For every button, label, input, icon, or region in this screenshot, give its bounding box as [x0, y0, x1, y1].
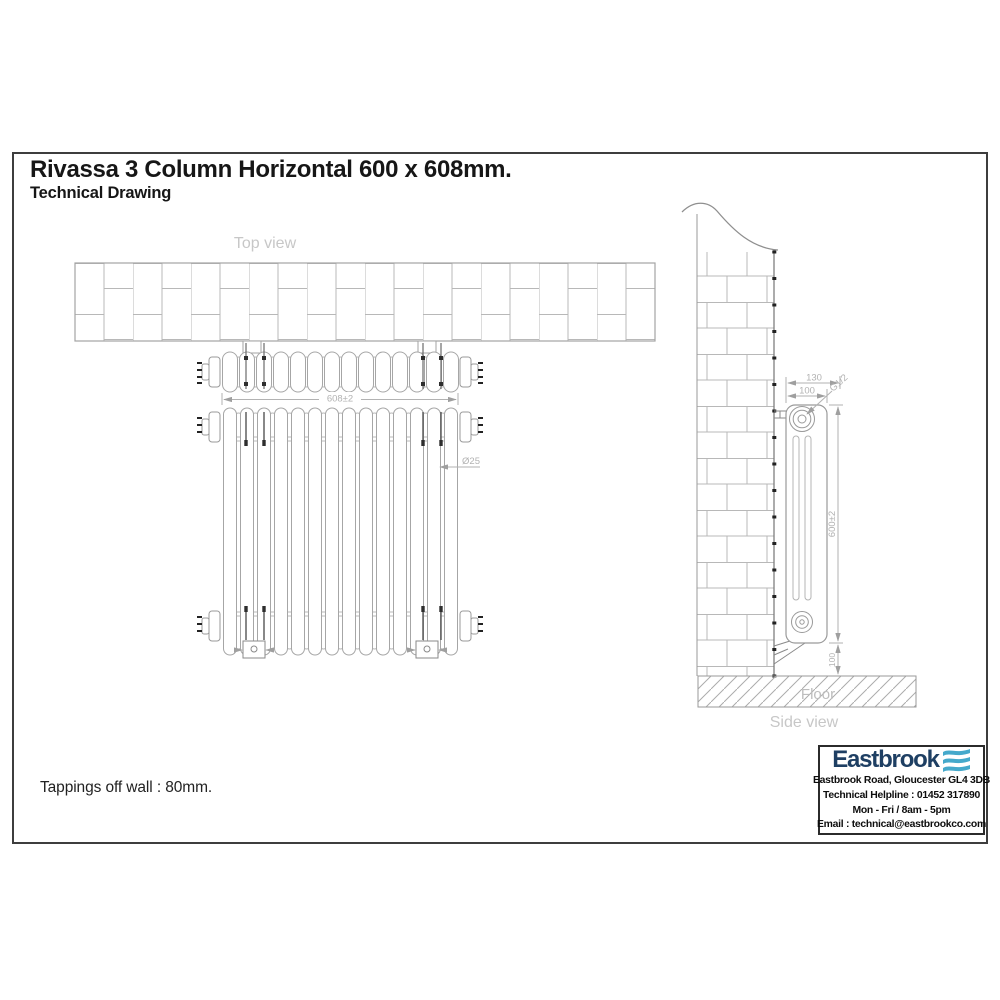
radiator-column-front-view: [360, 408, 373, 655]
radiator-front-view: [224, 408, 458, 655]
eastbrook-waves-logo-icon: [943, 747, 971, 773]
technical-drawing: Top view 608±2: [0, 0, 1000, 1000]
brick-course-tick: [772, 569, 776, 572]
depth-dimension: 100: [799, 386, 815, 397]
bracket-tick: [262, 356, 266, 360]
radiator-column-top-view: [359, 352, 374, 392]
brick-course-tick: [772, 330, 776, 333]
brick-course-tick: [772, 622, 776, 625]
radiator-end-boss-right-top-view: [460, 357, 478, 387]
floor-label: Floor: [801, 686, 835, 703]
bracket-hook-end: [421, 606, 424, 612]
bracket-hook-end: [421, 440, 424, 446]
top-view-label: Top view: [234, 235, 297, 252]
bracket-tick: [439, 382, 443, 386]
bracket-projection-dimension: 130: [806, 373, 822, 384]
wall-side-view: [697, 252, 774, 676]
brick-course-tick: [772, 251, 776, 254]
brand-helpline: Technical Helpline : 01452 317890: [823, 789, 980, 804]
width-dimension: 608±2: [327, 394, 353, 405]
radiator-side-view: [774, 405, 827, 664]
column-diameter-dimension: Ø25: [462, 456, 480, 467]
bracket-hook-end: [262, 606, 265, 612]
bracket-tick: [439, 356, 443, 360]
radiator-column-front-view: [275, 408, 288, 655]
bracket-hook-end: [262, 440, 265, 446]
brand-box: Eastbrook Eastbrook Road, Gloucester GL4…: [818, 745, 985, 835]
radiator-column-top-view: [342, 352, 357, 392]
side-view-label: Side view: [770, 714, 839, 731]
wall-bracket-tab: [418, 341, 436, 353]
radiator-column-front-view: [309, 408, 322, 655]
radiator-column-front-view: [343, 408, 356, 655]
end-boss-ticks: [478, 362, 483, 384]
tappings-note: Tappings off wall : 80mm.: [40, 779, 212, 797]
radiator-column-top-view: [325, 352, 340, 392]
radiator-column-front-view: [445, 408, 458, 655]
radiator-column-top-view: [274, 352, 289, 392]
brick-course-tick: [772, 489, 776, 492]
bracket-tick: [421, 356, 425, 360]
radiator-column-front-view: [394, 408, 407, 655]
brick-course-tick: [772, 648, 776, 651]
radiator-column-top-view: [223, 352, 238, 392]
radiator-end-boss-left-top-view: [202, 357, 220, 387]
brand-hours: Mon - Fri / 8am - 5pm: [852, 804, 950, 819]
brand-header: Eastbrook: [832, 747, 971, 773]
radiator-column-top-view: [308, 352, 323, 392]
brick-course-tick: [772, 277, 776, 280]
radiator-column-front-view: [326, 408, 339, 655]
radiator-column-top-view: [444, 352, 459, 392]
end-boss-ticks: [197, 362, 202, 384]
bracket-tick: [244, 382, 248, 386]
height-dimension: 600±2: [827, 511, 838, 537]
radiator-column-front-view: [428, 408, 441, 655]
bracket-hook-end: [439, 440, 442, 446]
floor-clearance-dimension: 100: [827, 653, 837, 667]
brand-address: Eastbrook Road, Gloucester GL4 3DB: [813, 774, 990, 789]
bracket-hook-end: [244, 440, 247, 446]
brand-email: Email : technical@eastbrookco.com: [817, 818, 986, 833]
brick-course-tick: [772, 542, 776, 545]
brick-course-tick: [772, 304, 776, 307]
wall-broken-top-edge: [682, 203, 778, 250]
radiator-column-front-view: [377, 408, 390, 655]
radiator-column-top-view: [393, 352, 408, 392]
brick-course-tick: [772, 383, 776, 386]
wall-top-view: [75, 263, 655, 341]
radiator-column-front-view: [224, 408, 237, 655]
brand-name: Eastbrook: [832, 748, 939, 772]
radiator-column-top-view: [376, 352, 391, 392]
bracket-hook-end: [244, 606, 247, 612]
brick-course-tick: [772, 516, 776, 519]
brick-course-tick: [772, 463, 776, 466]
bracket-tick: [262, 382, 266, 386]
bracket-hook-end: [439, 606, 442, 612]
radiator-column-top-view: [291, 352, 306, 392]
bracket-tick: [421, 382, 425, 386]
brick-course-tick: [772, 595, 776, 598]
bracket-tick: [244, 356, 248, 360]
tapping-thread-dimension: G1/2: [828, 372, 851, 394]
brick-course-tick: [772, 436, 776, 439]
radiator-column-front-view: [292, 408, 305, 655]
brick-course-tick: [772, 357, 776, 360]
